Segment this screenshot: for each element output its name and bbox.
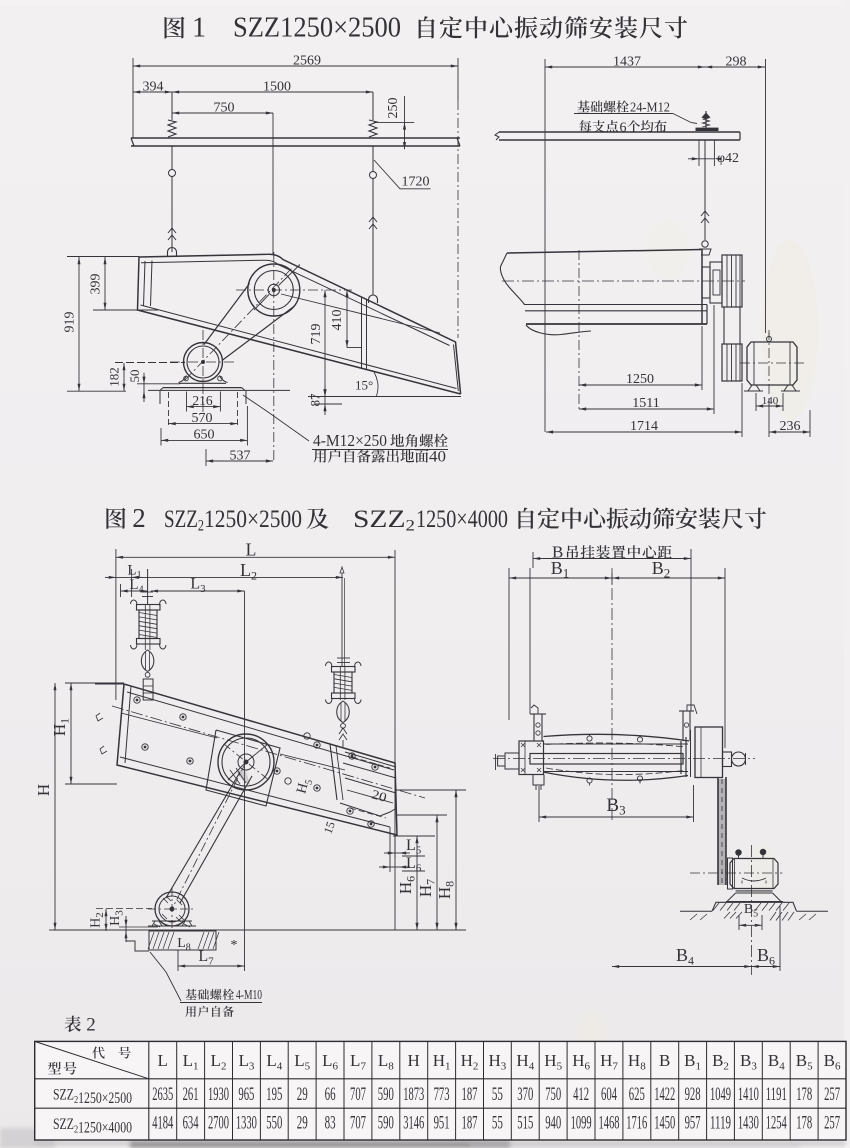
- svg-text:4-M12×250: 4-M12×250: [313, 431, 387, 450]
- svg-text:236: 236: [780, 419, 801, 434]
- svg-text:1250×4000: 1250×4000: [416, 506, 508, 533]
- svg-text:SZZ1250×2500: SZZ1250×2500: [233, 13, 401, 44]
- svg-text:570: 570: [192, 411, 213, 426]
- svg-text:537: 537: [230, 448, 251, 463]
- svg-text:1254: 1254: [766, 1113, 787, 1134]
- svg-text:B: B: [659, 1051, 670, 1070]
- svg-text:1873: 1873: [403, 1084, 424, 1105]
- svg-text:590: 590: [378, 1113, 394, 1134]
- svg-text:1410: 1410: [738, 1084, 759, 1105]
- svg-text:1720: 1720: [402, 175, 430, 190]
- svg-text:250: 250: [386, 98, 401, 119]
- svg-text:182: 182: [107, 367, 122, 387]
- svg-text:707: 707: [350, 1113, 366, 1134]
- svg-text:3146: 3146: [403, 1113, 424, 1134]
- svg-text:1422: 1422: [654, 1084, 675, 1105]
- svg-text:55: 55: [492, 1113, 503, 1134]
- svg-text:412: 412: [573, 1084, 589, 1105]
- svg-text:750: 750: [214, 100, 235, 115]
- svg-text:707: 707: [350, 1084, 366, 1105]
- svg-text:1714: 1714: [630, 419, 658, 434]
- svg-text:178: 178: [796, 1084, 812, 1105]
- svg-text:29: 29: [297, 1084, 308, 1105]
- svg-text:H: H: [34, 784, 53, 796]
- svg-text:6: 6: [620, 121, 627, 136]
- svg-text:399: 399: [89, 274, 104, 295]
- svg-text:928: 928: [685, 1084, 701, 1105]
- svg-text:195: 195: [266, 1084, 282, 1105]
- svg-text:1250: 1250: [626, 372, 654, 387]
- svg-text:370: 370: [517, 1084, 533, 1105]
- svg-text:φ42: φ42: [717, 150, 739, 165]
- svg-text:257: 257: [824, 1084, 840, 1105]
- svg-text:1511: 1511: [632, 396, 659, 411]
- svg-text:216: 216: [192, 393, 213, 408]
- svg-text:1930: 1930: [208, 1084, 229, 1105]
- svg-text:2: 2: [132, 503, 146, 533]
- svg-text:1250×2500: 1250×2500: [204, 506, 302, 533]
- svg-text:15°: 15°: [355, 378, 373, 393]
- svg-text:410: 410: [330, 310, 345, 331]
- svg-text:550: 550: [266, 1113, 282, 1134]
- svg-text:178: 178: [796, 1113, 812, 1134]
- svg-text:940: 940: [545, 1113, 561, 1134]
- svg-text:634: 634: [183, 1113, 199, 1134]
- svg-text:1099: 1099: [571, 1113, 592, 1134]
- svg-text:2635: 2635: [152, 1084, 173, 1105]
- svg-text:1430: 1430: [738, 1113, 759, 1134]
- svg-text:261: 261: [183, 1084, 199, 1105]
- svg-text:951: 951: [434, 1113, 450, 1134]
- svg-text:87: 87: [308, 393, 323, 407]
- svg-text:55: 55: [492, 1084, 503, 1105]
- svg-text:965: 965: [238, 1084, 254, 1105]
- svg-text:1450: 1450: [654, 1113, 675, 1134]
- svg-text:919: 919: [63, 312, 78, 333]
- svg-text:1330: 1330: [236, 1113, 257, 1134]
- svg-text:40: 40: [429, 449, 446, 466]
- svg-text:66: 66: [325, 1084, 336, 1105]
- svg-text:1: 1: [192, 13, 206, 44]
- svg-text:773: 773: [434, 1084, 450, 1105]
- svg-text:29: 29: [297, 1113, 308, 1134]
- svg-text:257: 257: [824, 1113, 840, 1134]
- svg-text:2569: 2569: [293, 53, 321, 68]
- svg-text:515: 515: [517, 1113, 533, 1134]
- svg-text:2: 2: [86, 1015, 96, 1036]
- svg-text:1119: 1119: [710, 1113, 731, 1134]
- svg-text:1191: 1191: [766, 1084, 787, 1105]
- svg-text:650: 650: [194, 428, 215, 443]
- svg-text:50: 50: [127, 370, 142, 383]
- svg-text:957: 957: [685, 1113, 701, 1134]
- svg-text:H: H: [408, 1051, 420, 1070]
- svg-text:2700: 2700: [208, 1113, 229, 1134]
- svg-text:604: 604: [601, 1084, 617, 1105]
- svg-text:L: L: [158, 1051, 168, 1070]
- svg-text:L: L: [246, 540, 257, 560]
- svg-text:394: 394: [143, 79, 164, 94]
- svg-text:4184: 4184: [152, 1113, 173, 1134]
- svg-text:298: 298: [726, 54, 747, 69]
- svg-text:1049: 1049: [710, 1084, 731, 1105]
- svg-text:1716: 1716: [626, 1113, 647, 1134]
- svg-text:625: 625: [629, 1084, 645, 1105]
- svg-text:4-M10: 4-M10: [236, 988, 262, 1003]
- svg-text:750: 750: [545, 1084, 561, 1105]
- svg-text:1468: 1468: [599, 1113, 620, 1134]
- svg-text:719: 719: [309, 324, 324, 345]
- svg-text:*: *: [231, 938, 238, 953]
- svg-text:1437: 1437: [613, 54, 641, 69]
- svg-text:1500: 1500: [263, 79, 291, 94]
- svg-text:187: 187: [462, 1113, 478, 1134]
- svg-text:590: 590: [378, 1084, 394, 1105]
- svg-text:83: 83: [325, 1113, 336, 1134]
- svg-text:140: 140: [762, 395, 779, 407]
- svg-text:187: 187: [462, 1084, 478, 1105]
